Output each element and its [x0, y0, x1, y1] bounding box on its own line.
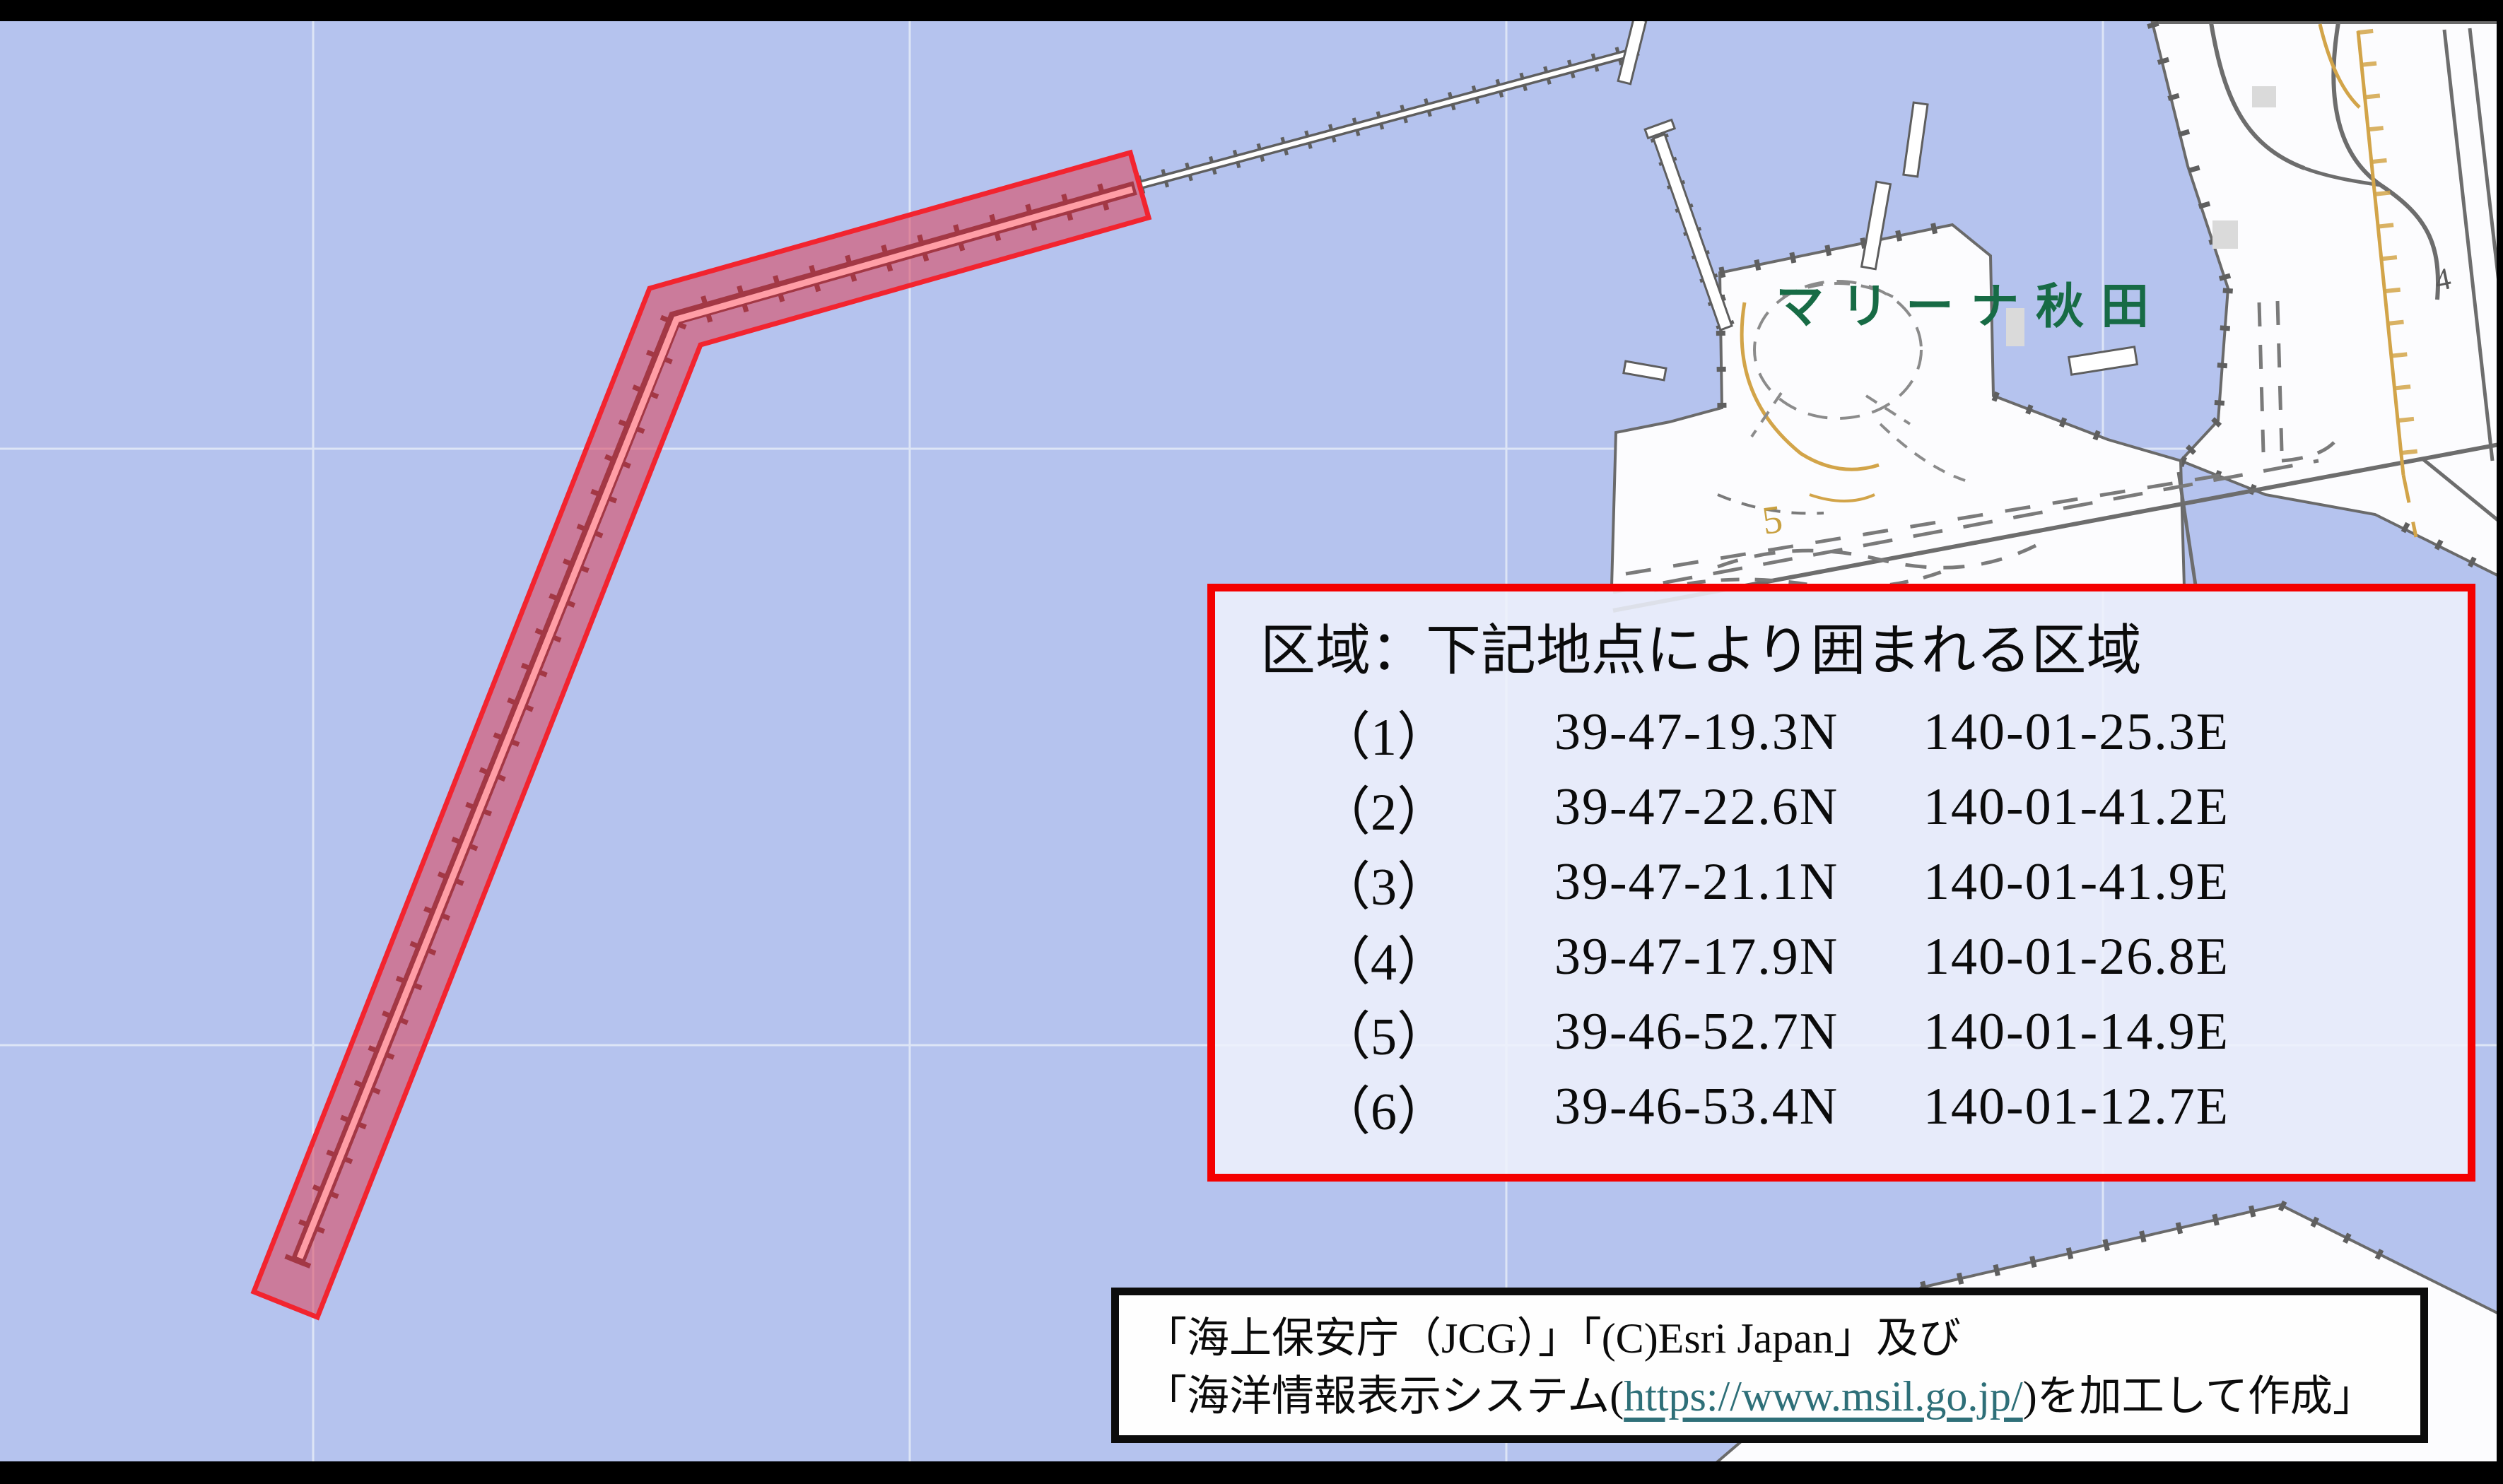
coordinate-row: （3）39-47-21.1N140-01-41.9E	[1215, 844, 2468, 919]
letterbox-bar-right	[2497, 0, 2503, 1484]
point-number: （1）	[1318, 695, 1554, 770]
attribution-line-2: 「海洋情報表示システム(https://www.msil.go.jp/)を加工し…	[1144, 1367, 2420, 1425]
coordinate-list: （1）39-47-19.3N140-01-25.3E （2）39-47-22.6…	[1215, 695, 2468, 1144]
point-longitude: 140-01-41.9E	[1923, 852, 2229, 912]
point-longitude: 140-01-41.2E	[1923, 777, 2229, 837]
point-latitude: 39-46-52.7N	[1554, 1002, 1923, 1062]
letterbox-bar-bottom	[0, 1461, 2503, 1484]
marina-akita-label: マリーナ秋田	[1776, 267, 2166, 337]
point-longitude: 140-01-12.7E	[1923, 1077, 2229, 1137]
point-number: （5）	[1318, 994, 1554, 1070]
point-longitude: 140-01-26.8E	[1923, 927, 2229, 987]
point-number: （6）	[1318, 1069, 1554, 1145]
point-longitude: 140-01-25.3E	[1923, 702, 2229, 762]
point-longitude: 140-01-14.9E	[1923, 1002, 2229, 1062]
coordinate-row: （4）39-47-17.9N140-01-26.8E	[1215, 919, 2468, 994]
region-box-title: 区域：下記地点により囲まれる区域	[1260, 617, 2468, 685]
chart-screenshot: 5 4 マリーナ秋田 区域：下記地点により囲ま	[0, 0, 2503, 1484]
attribution-box: 「海上保安庁（JCG）」「(C)Esri Japan」及び 「海洋情報表示システ…	[1111, 1288, 2428, 1443]
point-number: （3）	[1318, 844, 1554, 920]
coordinate-row: （6）39-46-53.4N140-01-12.7E	[1215, 1069, 2468, 1144]
point-latitude: 39-47-19.3N	[1554, 702, 1923, 762]
point-latitude: 39-47-21.1N	[1554, 852, 1923, 912]
letterbox-bar-top	[0, 0, 2503, 21]
attribution-line2-prefix: 「海洋情報表示システム(	[1144, 1373, 1624, 1420]
point-latitude: 39-47-22.6N	[1554, 777, 1923, 837]
point-number: （2）	[1318, 770, 1554, 845]
coordinate-row: （2）39-47-22.6N140-01-41.2E	[1215, 770, 2468, 844]
coordinate-row: （5）39-46-52.7N140-01-14.9E	[1215, 994, 2468, 1069]
attribution-line2-suffix: )を加工して作成」	[2023, 1373, 2375, 1420]
point-latitude: 39-47-17.9N	[1554, 927, 1923, 987]
coordinate-row: （1）39-47-19.3N140-01-25.3E	[1215, 695, 2468, 770]
point-number: （4）	[1318, 919, 1554, 995]
msil-url-link[interactable]: https://www.msil.go.jp/	[1624, 1373, 2023, 1420]
point-latitude: 39-46-53.4N	[1554, 1077, 1923, 1137]
attribution-line-1: 「海上保安庁（JCG）」「(C)Esri Japan」及び	[1144, 1309, 2420, 1367]
restricted-area-coordinates-box: 区域：下記地点により囲まれる区域 （1）39-47-19.3N140-01-25…	[1207, 584, 2475, 1182]
